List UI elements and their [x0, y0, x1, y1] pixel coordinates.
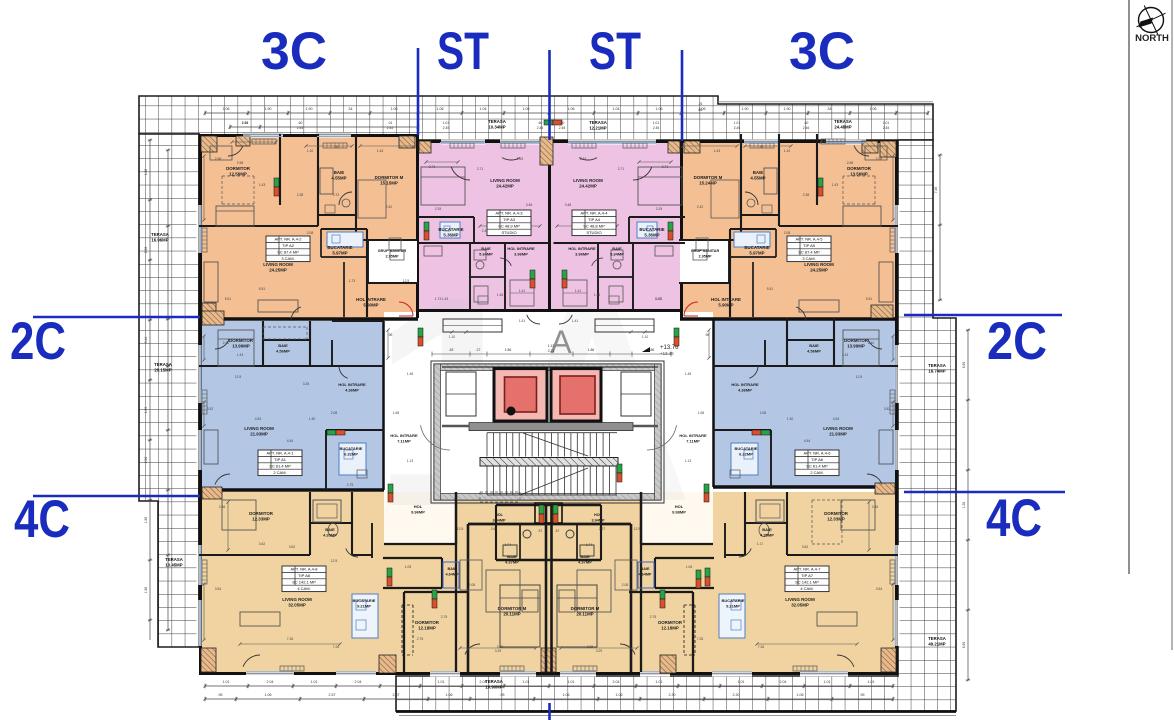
svg-text:2.08: 2.08	[784, 231, 791, 235]
svg-text:12.33MP: 12.33MP	[252, 516, 270, 521]
svg-text:LIVING ROOM: LIVING ROOM	[804, 262, 834, 267]
svg-text:2.04: 2.04	[355, 680, 362, 684]
svg-text:3.29: 3.29	[495, 649, 502, 653]
svg-text:6.90: 6.90	[962, 642, 966, 649]
svg-text:1.06: 1.06	[265, 693, 272, 697]
svg-text:4.54: 4.54	[833, 417, 840, 421]
svg-text:2.42: 2.42	[386, 205, 393, 209]
svg-text:1.10: 1.10	[642, 335, 649, 339]
svg-text:1.01: 1.01	[738, 680, 745, 684]
svg-text:2.40: 2.40	[868, 341, 875, 345]
svg-text:TIP A7: TIP A7	[801, 573, 814, 578]
svg-text:3C: 3C	[261, 22, 327, 81]
svg-text:.98: .98	[759, 145, 764, 149]
svg-text:2C: 2C	[987, 312, 1047, 371]
svg-text:1.86: 1.86	[648, 348, 655, 352]
svg-text:2.71: 2.71	[662, 165, 669, 169]
svg-text:1.46: 1.46	[497, 293, 504, 297]
svg-text:1.28: 1.28	[962, 502, 966, 509]
svg-text:BAIE: BAIE	[640, 567, 650, 571]
svg-text:BAIE: BAIE	[325, 527, 335, 532]
svg-text:1.06: 1.06	[391, 107, 398, 111]
svg-text:12.5: 12.5	[235, 375, 242, 379]
svg-text:1.68: 1.68	[393, 411, 400, 415]
svg-text:1.13: 1.13	[407, 459, 414, 463]
svg-text:1.73: 1.73	[656, 297, 663, 301]
svg-text:3.52: 3.52	[207, 407, 214, 411]
svg-text:1.90: 1.90	[144, 407, 148, 414]
svg-text:1.01: 1.01	[311, 680, 318, 684]
svg-text:2.30: 2.30	[669, 693, 676, 697]
svg-text:BAIE: BAIE	[481, 246, 491, 251]
svg-text:A: A	[550, 324, 572, 360]
svg-text:HOL INTRARE: HOL INTRARE	[711, 297, 741, 302]
svg-text:1.06: 1.06	[446, 693, 453, 697]
svg-text:2.75: 2.75	[347, 483, 354, 487]
svg-text:12.33MP: 12.33MP	[827, 516, 845, 521]
svg-text:1.01: 1.01	[883, 121, 890, 125]
svg-text:10.34MP: 10.34MP	[488, 124, 505, 129]
svg-text:4.36MP: 4.36MP	[738, 387, 752, 392]
svg-text:LIVING ROOM: LIVING ROOM	[573, 178, 603, 183]
svg-text:SC 142.1 MP: SC 142.1 MP	[795, 580, 819, 585]
svg-text:4.35MP: 4.35MP	[323, 532, 337, 537]
svg-text:BAIE: BAIE	[612, 246, 622, 251]
svg-text:1.06: 1.06	[616, 693, 623, 697]
svg-text:1.46: 1.46	[594, 293, 601, 297]
svg-text:1.41: 1.41	[519, 289, 526, 293]
svg-text:2.72: 2.72	[333, 193, 340, 197]
svg-text:5.90MP: 5.90MP	[718, 302, 733, 307]
svg-text:TERASA: TERASA	[589, 120, 607, 125]
svg-text:HOL INTRARE: HOL INTRARE	[390, 433, 418, 438]
svg-text:1.17: 1.17	[757, 542, 764, 546]
svg-text:4.56MP: 4.56MP	[807, 348, 821, 353]
svg-text:2.04: 2.04	[780, 680, 787, 684]
svg-text:2.08: 2.08	[760, 411, 767, 415]
svg-text:TIP A1: TIP A1	[274, 457, 287, 462]
svg-text:HOL: HOL	[594, 513, 603, 517]
svg-text:2.25: 2.25	[435, 207, 442, 211]
svg-text:15.24MP: 15.24MP	[699, 180, 717, 185]
svg-text:2 CAM.: 2 CAM.	[273, 470, 286, 475]
svg-text:1.01: 1.01	[656, 680, 663, 684]
svg-text:1.41: 1.41	[572, 319, 579, 323]
svg-text:3 CAM.: 3 CAM.	[802, 256, 815, 261]
svg-text:1.06: 1.06	[656, 107, 663, 111]
svg-text:1.74: 1.74	[505, 543, 512, 547]
svg-text:DORMITOR M: DORMITOR M	[571, 606, 600, 611]
svg-text:DORMITOR M: DORMITOR M	[375, 175, 404, 180]
svg-text:6.32MP: 6.32MP	[344, 451, 358, 456]
svg-text:5.51: 5.51	[767, 287, 774, 291]
svg-text:3.62: 3.62	[289, 545, 296, 549]
svg-text:2.50: 2.50	[144, 457, 148, 464]
svg-text:4.37MP: 4.37MP	[578, 559, 592, 564]
svg-text:2.21: 2.21	[548, 349, 555, 353]
svg-text:2.96: 2.96	[237, 161, 244, 165]
svg-text:HOL INTRARE: HOL INTRARE	[679, 433, 707, 438]
svg-text:+13.48: +13.48	[660, 351, 674, 356]
svg-text:BUCATARIE: BUCATARIE	[744, 245, 769, 250]
svg-text:SC 142.1 MP: SC 142.1 MP	[292, 580, 316, 585]
svg-text:2.38: 2.38	[144, 247, 148, 254]
svg-text:3.96MP: 3.96MP	[575, 251, 589, 256]
svg-text:7.26: 7.26	[758, 645, 765, 649]
svg-text:2.45: 2.45	[297, 126, 304, 130]
svg-text:1.41: 1.41	[575, 289, 582, 293]
svg-text:2.75: 2.75	[441, 615, 448, 619]
svg-text:9.21MP: 9.21MP	[726, 603, 740, 608]
svg-text:SC 61.4 MP: SC 61.4 MP	[806, 464, 828, 469]
svg-text:3.62: 3.62	[802, 545, 809, 549]
svg-text:1.73: 1.73	[349, 279, 356, 283]
svg-text:7.26: 7.26	[333, 645, 340, 649]
svg-text:12.5: 12.5	[856, 375, 863, 379]
svg-text:3C: 3C	[789, 22, 855, 81]
svg-text:SC 48.8 MP: SC 48.8 MP	[583, 224, 605, 229]
svg-text:5.90MP: 5.90MP	[363, 302, 378, 307]
svg-text:2.45: 2.45	[537, 126, 544, 130]
svg-text:1.01: 1.01	[653, 121, 660, 125]
svg-text:1.98: 1.98	[144, 517, 148, 524]
svg-text:.01: .01	[388, 121, 393, 125]
svg-text:GRUP SANITAR: GRUP SANITAR	[378, 249, 407, 253]
svg-text:HOL: HOL	[414, 504, 423, 509]
svg-text:BAIE: BAIE	[507, 554, 517, 559]
svg-text:1.98: 1.98	[144, 587, 148, 594]
svg-text:TIP A5: TIP A5	[803, 243, 816, 248]
svg-text:TERASA: TERASA	[928, 636, 946, 641]
svg-text:5.36MP: 5.36MP	[644, 232, 659, 237]
svg-text:BUCATARIE: BUCATARIE	[340, 446, 363, 451]
svg-text:12.5: 12.5	[403, 279, 410, 283]
svg-text:3.54: 3.54	[876, 587, 883, 591]
svg-text:1.43: 1.43	[259, 183, 266, 187]
svg-text:2.08: 2.08	[307, 231, 314, 235]
svg-text:1.05: 1.05	[686, 565, 693, 569]
svg-text:24.42MP: 24.42MP	[579, 183, 597, 188]
svg-text:DORMITOR: DORMITOR	[415, 620, 440, 625]
svg-text:2.96: 2.96	[847, 161, 854, 165]
svg-text:16.96MP: 16.96MP	[151, 237, 168, 242]
svg-text:HOL: HOL	[495, 513, 504, 517]
svg-text:2.08: 2.08	[331, 411, 338, 415]
svg-text:5.51: 5.51	[866, 297, 873, 301]
svg-text:4.55MP: 4.55MP	[331, 175, 346, 180]
svg-text:10.45MP: 10.45MP	[165, 562, 182, 567]
svg-text:1.13: 1.13	[548, 344, 555, 348]
svg-text:18.74MP: 18.74MP	[928, 368, 945, 373]
svg-text:7.46: 7.46	[934, 187, 938, 194]
svg-text:2C: 2C	[10, 312, 66, 371]
svg-text:1.01: 1.01	[824, 680, 831, 684]
svg-text:6.90: 6.90	[962, 362, 966, 369]
svg-text:.76: .76	[698, 102, 703, 106]
svg-text:5.51: 5.51	[259, 287, 266, 291]
svg-text:TERASA: TERASA	[485, 679, 503, 684]
svg-text:10.90MP: 10.90MP	[485, 684, 502, 689]
svg-text:BAIE: BAIE	[762, 527, 772, 532]
svg-text:24.48MP: 24.48MP	[834, 124, 851, 129]
svg-text:2.45: 2.45	[734, 126, 741, 130]
svg-text:HOL: HOL	[675, 504, 684, 509]
svg-text:TERASA: TERASA	[928, 363, 946, 368]
svg-text:LIVING ROOM: LIVING ROOM	[244, 426, 274, 431]
svg-text:5.36MP: 5.36MP	[443, 232, 458, 237]
svg-text:7.26: 7.26	[287, 637, 294, 641]
svg-text:HOL INTRARE: HOL INTRARE	[338, 382, 366, 387]
svg-text:4.55MP: 4.55MP	[750, 175, 765, 180]
svg-text:TIP A4: TIP A4	[588, 217, 601, 222]
svg-text:ST: ST	[437, 22, 489, 81]
svg-text:2.46: 2.46	[803, 126, 810, 130]
svg-text:.95: .95	[860, 693, 865, 697]
svg-text:20.11MP: 20.11MP	[576, 611, 593, 616]
svg-text:1.06: 1.06	[870, 107, 877, 111]
svg-text:1.38: 1.38	[144, 169, 148, 176]
svg-text:4.37MP: 4.37MP	[505, 559, 519, 564]
svg-text:5.97MP: 5.97MP	[749, 250, 764, 255]
svg-text:2.45: 2.45	[242, 121, 249, 125]
svg-text:1.90: 1.90	[265, 107, 272, 111]
svg-text:2.57: 2.57	[329, 693, 336, 697]
svg-text:1.90: 1.90	[742, 107, 749, 111]
svg-text:3.48: 3.48	[526, 203, 533, 207]
svg-text:1.43: 1.43	[377, 149, 384, 153]
svg-text:4.54: 4.54	[287, 439, 294, 443]
svg-text:24.25MP: 24.25MP	[810, 267, 828, 272]
svg-text:2.96: 2.96	[876, 157, 883, 161]
svg-text:1.86: 1.86	[505, 348, 512, 352]
svg-text:2.71: 2.71	[618, 167, 625, 171]
svg-text:2.30: 2.30	[733, 693, 740, 697]
svg-text:5.51: 5.51	[225, 297, 232, 301]
svg-text:1.43: 1.43	[714, 149, 721, 153]
svg-text:12.5: 12.5	[331, 559, 338, 563]
svg-text:.57: .57	[538, 529, 543, 533]
svg-text:BUCATARIE: BUCATARIE	[353, 598, 376, 603]
svg-text:2.04: 2.04	[267, 680, 274, 684]
svg-text:2.67: 2.67	[599, 527, 606, 531]
svg-text:2.46: 2.46	[872, 505, 879, 509]
svg-text:49.21MP: 49.21MP	[928, 641, 945, 646]
svg-text:1.04: 1.04	[613, 107, 620, 111]
svg-text:1.01: 1.01	[438, 680, 445, 684]
svg-text:1.01: 1.01	[443, 121, 450, 125]
svg-text:DORMITOR M: DORMITOR M	[498, 606, 527, 611]
svg-text:2.45: 2.45	[443, 126, 450, 130]
svg-text:3.48: 3.48	[565, 203, 572, 207]
svg-text:2.25: 2.25	[656, 207, 663, 211]
svg-text:SC 48.9 MP: SC 48.9 MP	[498, 224, 520, 229]
svg-text:.57: .57	[555, 529, 560, 533]
svg-text:4.54: 4.54	[255, 417, 262, 421]
svg-text:9.96MP: 9.96MP	[411, 509, 425, 514]
svg-text:2.63: 2.63	[580, 157, 587, 161]
svg-text:2 CAM.: 2 CAM.	[810, 470, 823, 475]
svg-text:2.08: 2.08	[622, 583, 629, 587]
svg-text:1.06: 1.06	[523, 107, 530, 111]
svg-text:DORMITOR: DORMITOR	[229, 338, 254, 343]
svg-text:2.96: 2.96	[215, 157, 222, 161]
svg-text:LIVING ROOM: LIVING ROOM	[263, 262, 293, 267]
svg-text:2.46: 2.46	[219, 505, 226, 509]
svg-text:BAIE: BAIE	[278, 343, 288, 348]
svg-text:15.15MP: 15.15MP	[380, 180, 398, 185]
svg-text:1.48: 1.48	[685, 372, 692, 376]
svg-text:TERASA: TERASA	[165, 557, 183, 562]
svg-text:1.90: 1.90	[306, 107, 313, 111]
svg-text:STUDIO: STUDIO	[586, 230, 601, 235]
svg-text:21.93MP: 21.93MP	[829, 431, 847, 436]
svg-text:ST: ST	[589, 22, 641, 81]
svg-text:3.54: 3.54	[215, 587, 222, 591]
svg-text:TIP A2: TIP A2	[282, 243, 295, 248]
svg-text:3.29: 3.29	[587, 645, 594, 649]
svg-text:2.45: 2.45	[653, 126, 660, 130]
svg-text:2.45: 2.45	[559, 126, 566, 130]
svg-text:1.30: 1.30	[309, 417, 316, 421]
svg-text:4 CAM.: 4 CAM.	[800, 586, 813, 591]
svg-text:1.01: 1.01	[868, 680, 875, 684]
svg-text:1.06: 1.06	[568, 107, 575, 111]
svg-text:1.13: 1.13	[685, 459, 692, 463]
svg-text:DORMITOR: DORMITOR	[658, 620, 683, 625]
svg-text:2.71: 2.71	[429, 165, 436, 169]
svg-text:2.45: 2.45	[883, 126, 890, 130]
svg-text:GRUP SANITAR: GRUP SANITAR	[691, 249, 720, 253]
svg-text:12.18MP: 12.18MP	[661, 625, 679, 630]
svg-text:.60: .60	[298, 121, 303, 125]
svg-text:12.18MP: 12.18MP	[418, 625, 436, 630]
svg-text:STUDIO: STUDIO	[501, 230, 516, 235]
svg-text:BUCATARIE: BUCATARIE	[438, 227, 463, 232]
svg-text:DORMITOR: DORMITOR	[847, 166, 872, 171]
svg-text:4.36MP: 4.36MP	[345, 387, 359, 392]
svg-text:1.10: 1.10	[307, 149, 314, 153]
svg-text:3.96MP: 3.96MP	[514, 251, 528, 256]
svg-text:TERASA: TERASA	[488, 119, 506, 124]
svg-text:1.41: 1.41	[519, 319, 526, 323]
svg-text:20.15MP: 20.15MP	[154, 367, 171, 372]
svg-text:9.98MP: 9.98MP	[672, 509, 686, 514]
svg-text:4.56MP: 4.56MP	[276, 348, 290, 353]
svg-text:4 CAM.: 4 CAM.	[297, 586, 310, 591]
svg-text:7.11MP: 7.11MP	[397, 438, 411, 443]
svg-text:.63: .63	[449, 348, 454, 352]
svg-text:1.43: 1.43	[842, 353, 849, 357]
svg-text:5.34MP: 5.34MP	[479, 251, 493, 256]
svg-text:2.95MP: 2.95MP	[698, 254, 712, 258]
svg-text:.60: .60	[538, 121, 543, 125]
svg-text:.95: .95	[500, 693, 505, 697]
svg-text:1.10: 1.10	[784, 149, 791, 153]
svg-text:DORMITOR: DORMITOR	[824, 511, 849, 516]
svg-text:BUCATARIE: BUCATARIE	[327, 245, 352, 250]
svg-text:BAIE: BAIE	[447, 567, 457, 571]
svg-text:BAIE: BAIE	[334, 170, 345, 175]
svg-text:NORTH: NORTH	[1135, 33, 1169, 44]
svg-text:HOL INTRARE: HOL INTRARE	[731, 382, 759, 387]
svg-text:4.54: 4.54	[804, 439, 811, 443]
svg-text:1.06: 1.06	[699, 107, 706, 111]
svg-text:1.86: 1.86	[588, 348, 595, 352]
svg-text:12.56MP: 12.56MP	[229, 171, 247, 176]
svg-text:12.5: 12.5	[457, 527, 464, 531]
svg-text:BAIE: BAIE	[753, 170, 764, 175]
svg-text:1.30: 1.30	[787, 417, 794, 421]
svg-text:2.75: 2.75	[650, 615, 657, 619]
svg-text:TERASA: TERASA	[154, 362, 172, 367]
svg-text:SC 61.4 MP: SC 61.4 MP	[269, 464, 291, 469]
svg-text:1.48: 1.48	[407, 372, 414, 376]
svg-text:TIP A6: TIP A6	[811, 457, 824, 462]
svg-text:13.99MP: 13.99MP	[232, 343, 250, 348]
svg-text:LIVING ROOM: LIVING ROOM	[823, 426, 853, 431]
svg-text:HOL INTRARE: HOL INTRARE	[568, 246, 596, 251]
svg-text:LIVING ROOM: LIVING ROOM	[282, 597, 312, 602]
svg-text:2.04: 2.04	[613, 680, 620, 684]
svg-text:3.44: 3.44	[144, 337, 148, 344]
svg-text:2.38: 2.38	[297, 193, 304, 197]
svg-text:2.63: 2.63	[517, 157, 524, 161]
svg-text:DORMITOR: DORMITOR	[249, 511, 274, 516]
svg-text:BUCATARIE: BUCATARIE	[735, 446, 758, 451]
svg-text:.98: .98	[334, 145, 339, 149]
svg-text:12.5: 12.5	[634, 527, 641, 531]
svg-text:1.68: 1.68	[698, 411, 705, 415]
svg-text:24.25MP: 24.25MP	[269, 267, 287, 272]
svg-text:DORMITOR: DORMITOR	[844, 338, 869, 343]
svg-text:.60: .60	[560, 121, 565, 125]
svg-text:.34: .34	[348, 107, 353, 111]
svg-text:2.67: 2.67	[491, 527, 498, 531]
svg-text:HOL INTRARE: HOL INTRARE	[356, 297, 386, 302]
svg-text:3.52: 3.52	[884, 407, 891, 411]
svg-text:1.43: 1.43	[237, 353, 244, 357]
svg-text:4.64MP: 4.64MP	[445, 572, 459, 576]
svg-text:1.01: 1.01	[523, 680, 530, 684]
svg-text:7.26: 7.26	[697, 637, 704, 641]
svg-text:2.45: 2.45	[387, 126, 394, 130]
svg-text:DORMITOR: DORMITOR	[226, 166, 251, 171]
svg-text:TERASA: TERASA	[834, 119, 852, 124]
svg-text:1.90: 1.90	[784, 107, 791, 111]
svg-text:DORMITOR M: DORMITOR M	[694, 175, 723, 180]
svg-text:BAIE: BAIE	[809, 343, 819, 348]
svg-text:TERASA: TERASA	[151, 232, 169, 237]
svg-text:TIP A8: TIP A8	[298, 573, 311, 578]
svg-text:2.42: 2.42	[697, 205, 704, 209]
svg-text:.95: .95	[218, 693, 223, 697]
svg-text:3 CAM.: 3 CAM.	[281, 256, 294, 261]
svg-text:2.95MP: 2.95MP	[385, 254, 399, 258]
svg-text:24.42MP: 24.42MP	[496, 183, 514, 188]
svg-text:13.56MP: 13.56MP	[850, 171, 868, 176]
svg-text:12.21MP: 12.21MP	[589, 125, 606, 130]
svg-text:1.06: 1.06	[563, 693, 570, 697]
svg-text:1.06: 1.06	[437, 107, 444, 111]
svg-text:3.29: 3.29	[596, 649, 603, 653]
svg-text:1.74: 1.74	[586, 543, 593, 547]
svg-text:1.01: 1.01	[223, 680, 230, 684]
svg-text:32.05MP: 32.05MP	[288, 602, 306, 607]
svg-text:1.06: 1.06	[223, 107, 230, 111]
svg-text:2.71: 2.71	[477, 167, 484, 171]
svg-text:4.35MP: 4.35MP	[760, 532, 774, 537]
svg-text:HOL INTRARE: HOL INTRARE	[507, 246, 535, 251]
